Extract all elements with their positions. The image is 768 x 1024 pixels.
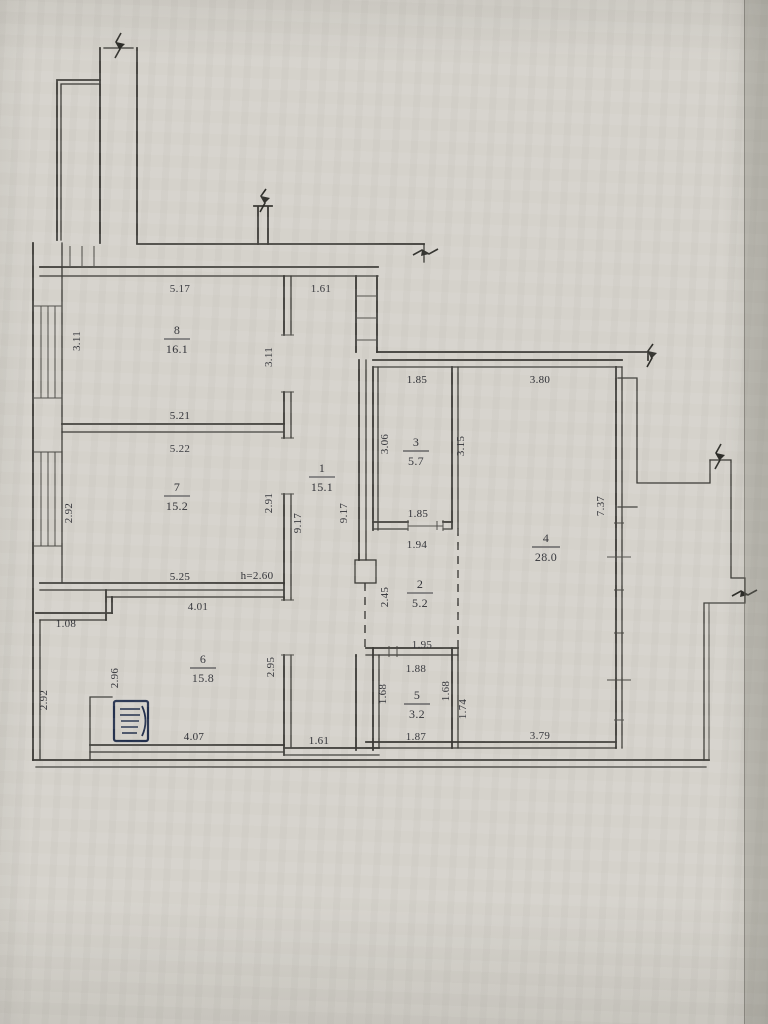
loggia-outline-inner	[61, 84, 100, 240]
wall-stub	[254, 206, 272, 244]
dim-left-outer: 2.92	[38, 690, 50, 710]
floor-plan-drawing: 5.17 8 16.1 3.11 3.11 5.21 5.22 7 15.2 2…	[0, 0, 768, 1024]
dim-left: 3.15	[455, 436, 467, 457]
wall-hatch	[70, 246, 94, 266]
dim-bottom: 3.79	[530, 730, 551, 742]
room-number: 5	[414, 688, 420, 702]
dim-top: 1.85	[407, 374, 428, 386]
dim-top: 1.61	[311, 283, 331, 295]
room6-labels: 4.01 1.08 6 15.8 2.96 2.92 2.95 4.07	[38, 601, 277, 743]
room-number: 4	[543, 531, 549, 545]
break-mark	[413, 249, 438, 256]
dim-bottom: 4.07	[184, 731, 205, 743]
room-area: 5.7	[408, 454, 424, 468]
room-number: 2	[417, 577, 423, 591]
ceiling-height-note: h=2.60	[241, 570, 274, 582]
dim-left: 2.45	[379, 587, 391, 608]
door-jambs	[281, 335, 294, 655]
dim-top: 1.88	[406, 663, 427, 675]
dim-outer-right: 1.74	[457, 699, 469, 720]
dim-right: 1.68	[440, 681, 452, 702]
window-room8	[33, 306, 62, 398]
page-edge-shadow	[745, 0, 768, 1024]
break-mark	[715, 444, 725, 469]
room-area: 28.0	[535, 550, 557, 564]
window-room4	[607, 523, 631, 720]
dim-bottom: 1.85	[408, 508, 429, 520]
interior-walls	[40, 276, 616, 760]
room-area: 16.1	[166, 342, 188, 356]
balcony-outline	[618, 378, 745, 760]
dim-top: 3.80	[530, 374, 551, 386]
loggia-outline	[57, 80, 100, 240]
scanned-floor-plan-page: 5.17 8 16.1 3.11 3.11 5.21 5.22 7 15.2 2…	[0, 0, 768, 1024]
break-marks	[115, 33, 757, 597]
dim-top: 4.01	[188, 601, 208, 613]
window-hallway	[356, 276, 377, 352]
dim-bottom: 1.87	[406, 731, 427, 743]
window-room7	[33, 452, 62, 546]
dim-left: 3.11	[71, 331, 83, 351]
dim-step: 1.08	[56, 618, 77, 630]
room7-labels: 5.22 7 15.2 2.92 2.91 5.25 h=2.60	[63, 443, 275, 583]
dim-top: 5.22	[170, 443, 190, 455]
dim-bottom: 5.25	[170, 571, 191, 583]
dim-right: 2.95	[265, 657, 277, 678]
dim-left: 3.06	[379, 434, 391, 455]
room5-labels: 1.88 5 3.2 1.68 1.68 1.74 1.87	[377, 663, 469, 743]
ventilation-shaft-icon	[114, 701, 148, 741]
dim-left: 1.68	[377, 684, 389, 705]
dim-top: 5.17	[170, 283, 191, 295]
room-number: 8	[174, 323, 180, 337]
dim-right: 2.91	[263, 493, 275, 513]
wall-pier	[355, 560, 376, 583]
dim-left: 2.92	[63, 503, 75, 523]
room1-labels: 1.61 1 15.1 9.17 9.17 1.61	[292, 283, 350, 747]
room4-labels: 3.80 3.15 4 28.0 7.37 3.79	[455, 374, 607, 742]
room3-labels: 1.85 3 5.7 3.06 1.85	[379, 374, 429, 520]
dim-left: 9.17	[292, 513, 304, 534]
room2-labels: 1.94 2 5.2 2.45 1.95	[379, 539, 433, 651]
room-area: 5.2	[412, 596, 428, 610]
dim-bottom: 1.95	[412, 639, 433, 651]
dim-right: 7.37	[595, 496, 607, 517]
dim-right: 3.11	[263, 347, 275, 367]
room-number: 6	[200, 652, 206, 666]
room-number: 1	[319, 461, 325, 475]
room-area: 15.2	[166, 499, 188, 513]
room-number: 7	[174, 480, 180, 494]
dim-right: 9.17	[338, 503, 350, 524]
room-area: 3.2	[409, 707, 425, 721]
dim-left: 2.96	[109, 668, 121, 689]
room-area: 15.1	[311, 480, 333, 494]
dim-bottom: 1.61	[309, 735, 329, 747]
room3-door-wall	[373, 520, 452, 531]
room-area: 15.8	[192, 671, 214, 685]
room8-labels: 5.17 8 16.1 3.11 3.11 5.21	[71, 283, 275, 422]
outer-walls	[33, 48, 745, 767]
dim-top: 1.94	[407, 539, 428, 551]
room6-niche	[90, 697, 112, 760]
room-number: 3	[413, 435, 419, 449]
break-mark	[115, 33, 125, 58]
dim-bottom: 5.21	[170, 410, 190, 422]
